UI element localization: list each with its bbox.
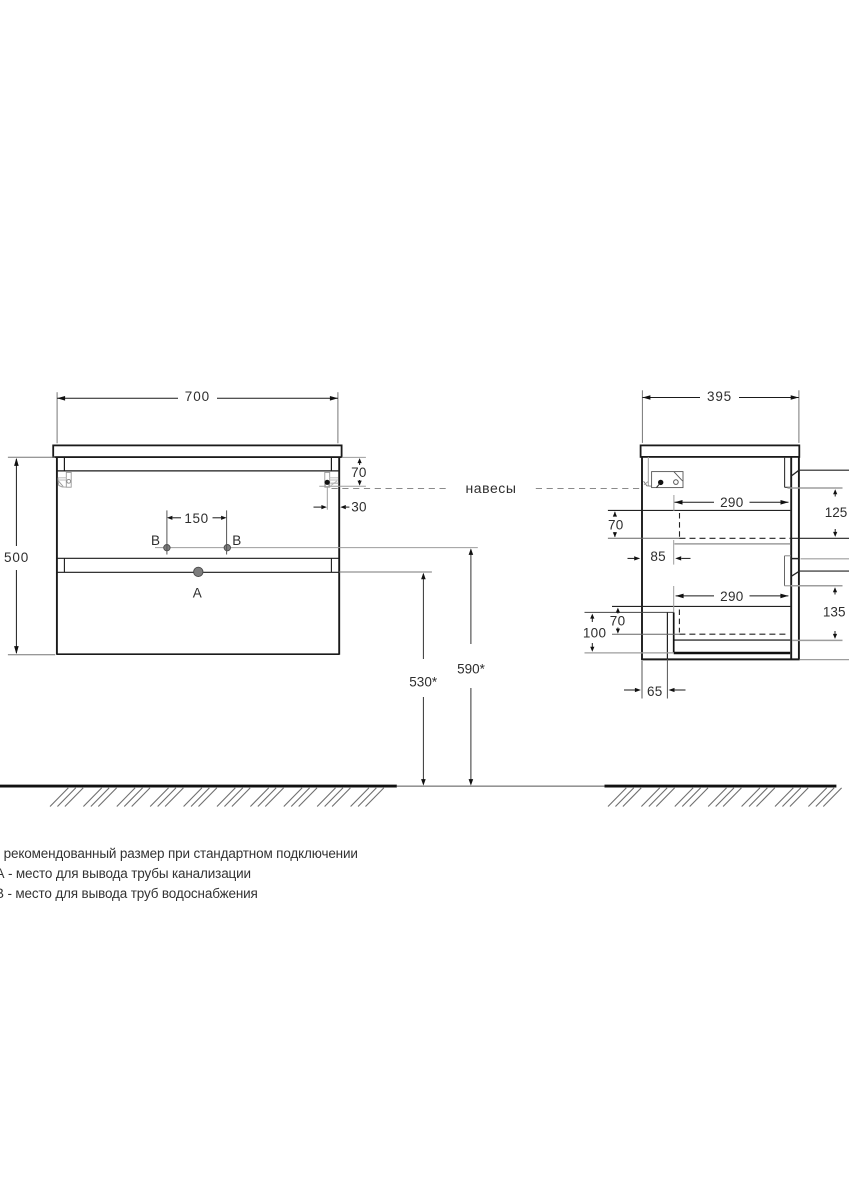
svg-text:* - рекомендованный размер при: * - рекомендованный размер при стандартн…: [0, 846, 358, 861]
svg-text:290: 290: [720, 589, 743, 604]
svg-text:135: 135: [823, 605, 846, 620]
svg-text:700: 700: [185, 389, 210, 404]
svg-text:85: 85: [650, 549, 666, 564]
svg-text:290: 290: [720, 495, 743, 510]
svg-text:65: 65: [647, 684, 663, 699]
svg-text:А - место для вывода трубы кан: А - место для вывода трубы канализации: [0, 866, 251, 881]
svg-text:500: 500: [4, 550, 29, 565]
svg-text:70: 70: [608, 518, 624, 533]
svg-text:70: 70: [610, 613, 626, 628]
svg-text:B: B: [232, 533, 241, 548]
svg-text:100: 100: [583, 626, 606, 641]
svg-text:395: 395: [707, 389, 732, 404]
svg-text:150: 150: [184, 511, 208, 526]
svg-text:A: A: [193, 585, 202, 600]
svg-text:навесы: навесы: [466, 480, 517, 496]
svg-text:70: 70: [351, 465, 367, 480]
svg-text:590*: 590*: [457, 662, 486, 677]
svg-text:530*: 530*: [409, 675, 438, 690]
svg-text:125: 125: [825, 505, 848, 520]
svg-text:B: B: [151, 533, 160, 548]
svg-text:В - место для вывода труб водо: В - место для вывода труб водоснабжения: [0, 886, 258, 901]
svg-text:30: 30: [351, 500, 367, 515]
